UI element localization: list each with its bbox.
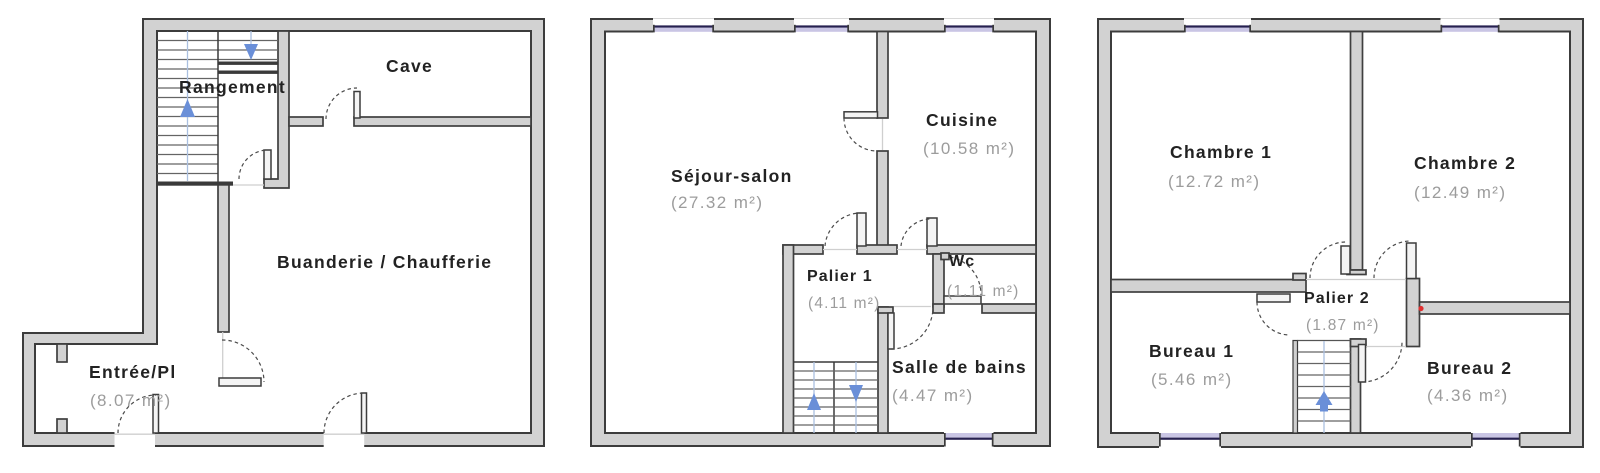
svg-text:(27.32 m²): (27.32 m²) bbox=[671, 193, 763, 212]
svg-text:Buanderie / Chaufferie: Buanderie / Chaufferie bbox=[277, 252, 492, 272]
svg-text:Cuisine: Cuisine bbox=[926, 110, 998, 130]
svg-text:(12.72 m²): (12.72 m²) bbox=[1168, 172, 1260, 191]
svg-text:(1.87 m²): (1.87 m²) bbox=[1306, 317, 1380, 334]
svg-text:Bureau 1: Bureau 1 bbox=[1149, 341, 1234, 361]
svg-text:Cave: Cave bbox=[386, 56, 433, 76]
svg-text:Séjour-salon: Séjour-salon bbox=[671, 166, 793, 186]
svg-text:Chambre 1: Chambre 1 bbox=[1170, 142, 1272, 162]
svg-text:Wc: Wc bbox=[949, 253, 975, 270]
svg-text:Palier 2: Palier 2 bbox=[1304, 290, 1370, 307]
svg-text:Rangement: Rangement bbox=[179, 77, 286, 97]
svg-text:Chambre 2: Chambre 2 bbox=[1414, 153, 1516, 173]
svg-text:(4.36 m²): (4.36 m²) bbox=[1427, 386, 1509, 405]
svg-text:Salle de bains: Salle de bains bbox=[892, 357, 1027, 377]
svg-text:(5.46 m²): (5.46 m²) bbox=[1151, 370, 1233, 389]
svg-text:Palier 1: Palier 1 bbox=[807, 268, 873, 285]
svg-text:(8.07 m²): (8.07 m²) bbox=[90, 391, 172, 410]
svg-text:(4.47 m²): (4.47 m²) bbox=[892, 386, 974, 405]
svg-text:(4.11 m²): (4.11 m²) bbox=[808, 295, 881, 312]
svg-text:(1.11 m²): (1.11 m²) bbox=[947, 283, 1020, 300]
svg-text:Entrée/Pl: Entrée/Pl bbox=[89, 362, 177, 382]
svg-text:Bureau 2: Bureau 2 bbox=[1427, 358, 1512, 378]
svg-text:(12.49 m²): (12.49 m²) bbox=[1414, 183, 1506, 202]
svg-text:(10.58 m²): (10.58 m²) bbox=[923, 139, 1015, 158]
